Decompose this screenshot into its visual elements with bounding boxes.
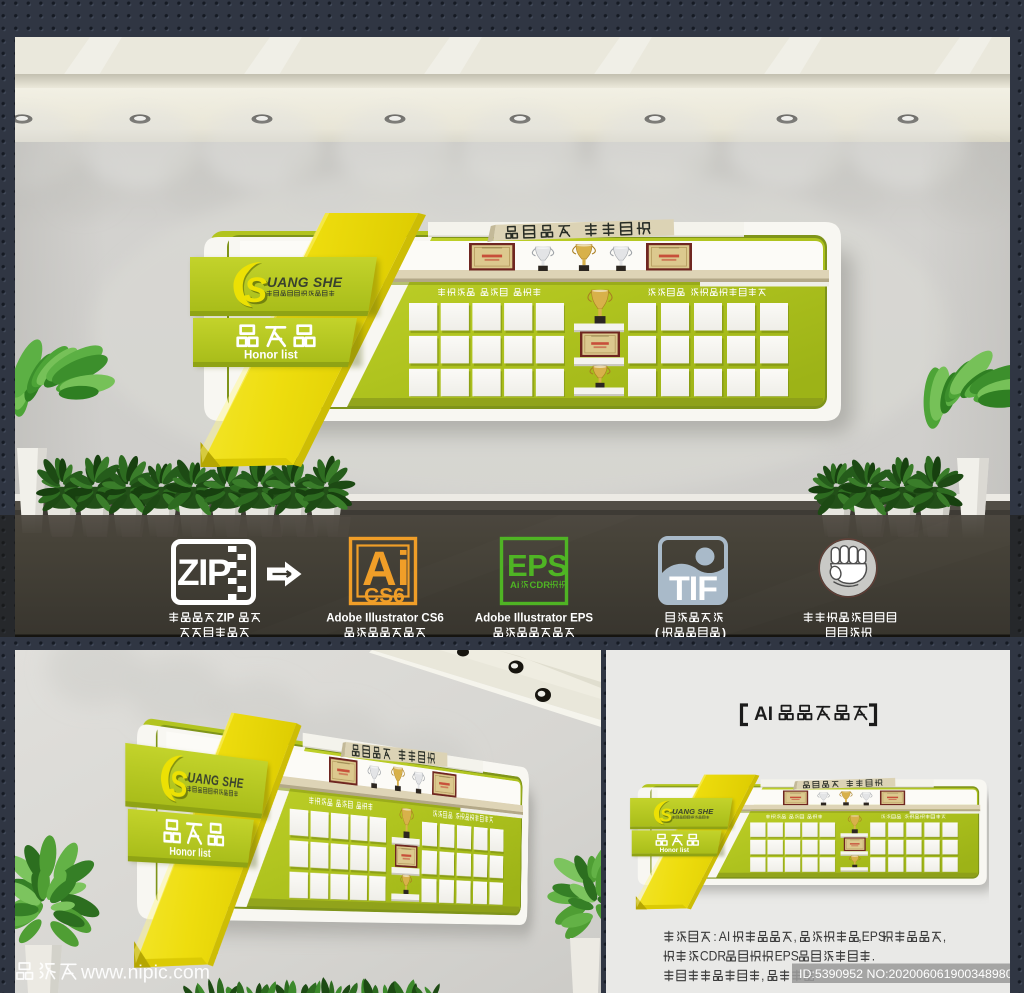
svg-text:CDR: CDR <box>700 948 726 964</box>
svg-text:(: ( <box>655 626 659 637</box>
svg-text:Ai: Ai <box>510 580 520 591</box>
svg-text:ZIP: ZIP <box>177 552 231 593</box>
svg-text:ID:5390952 NO:2020060619003489: ID:5390952 NO:20200606190034898000 <box>799 967 1010 981</box>
svg-text:AI: AI <box>754 704 773 725</box>
svg-text:EPS: EPS <box>507 548 568 583</box>
svg-text:CDR: CDR <box>530 580 551 591</box>
svg-text:ZIP: ZIP <box>217 613 235 625</box>
svg-text:,: , <box>794 929 797 944</box>
svg-text:TIF: TIF <box>669 570 717 608</box>
svg-text:CS6: CS6 <box>364 585 405 608</box>
svg-text:EPS: EPS <box>775 948 799 964</box>
svg-text:Adobe Illustrator EPS: Adobe Illustrator EPS <box>475 613 594 625</box>
svg-text:): ) <box>722 626 726 637</box>
svg-text:www.nipic.com: www.nipic.com <box>80 962 210 984</box>
svg-text:.: . <box>872 948 875 964</box>
svg-text::: : <box>713 929 716 944</box>
svg-text:,: , <box>761 968 764 983</box>
svg-text:,: , <box>943 929 946 944</box>
svg-text:Adobe Illustrator CS6: Adobe Illustrator CS6 <box>326 613 444 625</box>
svg-text:,EPS: ,EPS <box>858 928 886 944</box>
svg-text:AI: AI <box>719 928 730 944</box>
